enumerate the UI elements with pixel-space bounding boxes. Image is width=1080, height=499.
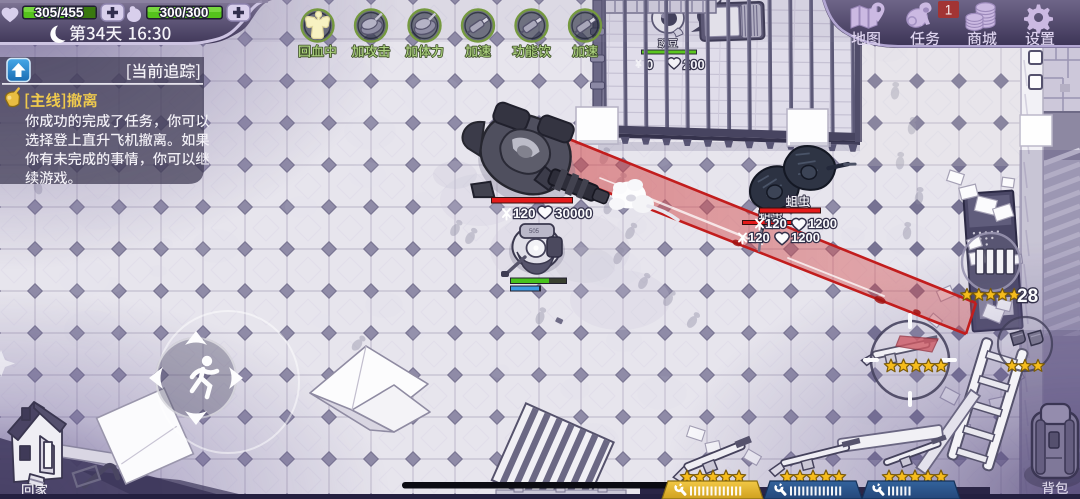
svg-text:1: 1: [945, 3, 953, 18]
svg-text:1200: 1200: [808, 216, 837, 231]
svg-text:120: 120: [513, 206, 536, 221]
svg-text:28: 28: [1017, 286, 1038, 307]
svg-text:120: 120: [765, 216, 787, 231]
svg-text:1200: 1200: [791, 230, 820, 245]
svg-text:300/300: 300/300: [160, 5, 209, 20]
svg-text:305/455: 305/455: [35, 5, 84, 20]
svg-text:505: 505: [529, 229, 540, 235]
svg-text:120: 120: [748, 230, 770, 245]
svg-text:30000: 30000: [555, 206, 593, 221]
